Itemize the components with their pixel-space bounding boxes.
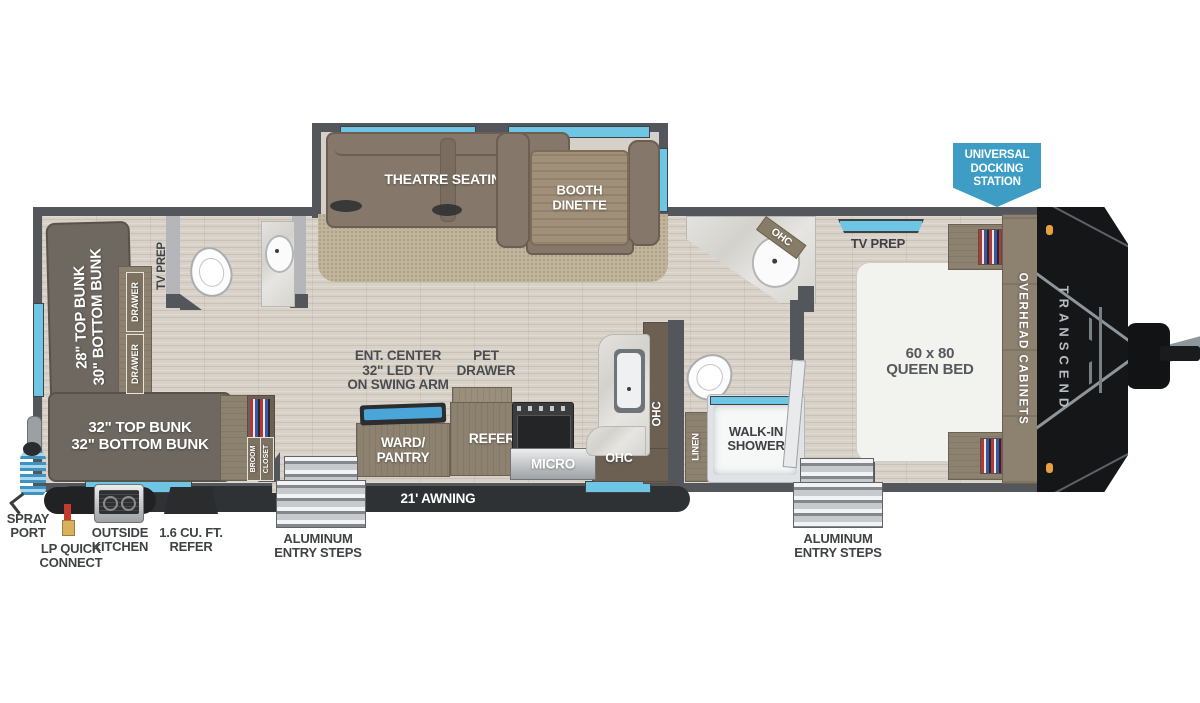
ohc-kitchen-side-wrap: OHC: [646, 388, 670, 440]
docking-station-badge: UNIVERSAL DOCKING STATION: [953, 143, 1041, 207]
ent-center-label: ENT. CENTER 32" LED TV ON SWING ARM: [342, 349, 454, 393]
entry-steps-left-top: [284, 456, 358, 482]
lp-connector: [64, 504, 71, 521]
closet-chip: CLOSET: [260, 437, 274, 481]
dinette-bench-left: [496, 132, 530, 248]
spray-port-label: SPRAY PORT: [2, 512, 54, 540]
badge-line3: STATION: [953, 176, 1041, 190]
wardrobe-cabinet: [220, 395, 248, 481]
outside-refer-unit: [164, 487, 218, 514]
microwave: MICRO: [510, 448, 596, 480]
overhead-cabinets-label: OVERHEAD CABINETS: [1016, 273, 1029, 426]
tv-prep-rear-label-wrap: TV PREP: [142, 228, 182, 304]
rear-bath-faucet: [275, 249, 279, 253]
front-cap: TRANSCEND: [1037, 207, 1128, 492]
range-cooktop: [512, 402, 574, 452]
hall-wall: [668, 320, 684, 483]
tv-prep-bed-label: TV PREP: [838, 237, 918, 251]
closet-label: CLOSET: [263, 445, 271, 473]
tv-prep-bed-mount: [838, 219, 924, 233]
kitchen-sink: [614, 349, 645, 413]
marker-light-bottom: [1046, 463, 1053, 473]
bunk32-label-bottom: 32" BOTTOM BUNK: [71, 437, 208, 454]
bunk-32: 32" TOP BUNK 32" BOTTOM BUNK: [48, 392, 232, 482]
bedroom-wall-post: [790, 300, 804, 360]
swing-arm-tv: [360, 403, 447, 426]
broom-chip: BROOM: [247, 437, 261, 481]
entry-steps-right: [793, 482, 883, 528]
broom-label: BROOM: [250, 446, 258, 473]
spray-port-cap: [23, 442, 41, 456]
pet-drawer-label: PET DRAWER: [448, 349, 524, 378]
refer-label: REFER: [469, 431, 515, 447]
linen-cabinet: LINEN: [685, 412, 708, 482]
linen-label: LINEN: [691, 433, 702, 461]
ward-pantry-cabinet: WARD/ PANTRY: [356, 423, 450, 477]
outside-kitchen-unit: [94, 484, 144, 523]
cap-emblem: [1099, 307, 1102, 393]
nightstand-top: [948, 224, 1006, 270]
tv-prep-rear-label: TV PREP: [156, 242, 168, 290]
micro-label: MICRO: [531, 456, 575, 471]
dinette-table: BOOTH DINETTE: [530, 150, 629, 246]
outside-kitchen-label: OUTSIDE KITCHEN: [88, 526, 152, 554]
drawer-label-1: DRAWER: [130, 282, 140, 322]
outside-refer-label: 1.6 CU. FT. REFER: [154, 526, 228, 554]
bunk-rear-label-bottom: 30" BOTTOM BUNK: [88, 247, 108, 385]
spray-port-hose: [20, 450, 46, 498]
nightstand-bottom-books: [980, 438, 1004, 474]
theatre-seating-label: THEATRE SEATING: [384, 172, 511, 188]
awning-label: 21' AWNING: [378, 491, 498, 506]
dinette-bench-right: [628, 140, 660, 246]
pet-drawer-unit: [452, 387, 512, 403]
bunk32-label-top: 32" TOP BUNK: [71, 420, 208, 437]
badge-line2: DOCKING: [953, 163, 1041, 177]
closet-books: [250, 399, 270, 437]
drawer-chip-2: DRAWER: [126, 334, 144, 394]
lp-connector-tip: [62, 520, 75, 536]
ward-label-line2: PANTRY: [377, 450, 430, 465]
marker-light-top: [1046, 225, 1053, 235]
nightstand-bottom: [948, 432, 1008, 480]
shower-label-line1: WALK-IN: [727, 424, 784, 438]
drawer-label-2: DRAWER: [130, 344, 140, 384]
entry-steps-right-top: [800, 458, 874, 484]
ward-label-line1: WARD/: [377, 435, 430, 450]
dinette-label-line1: BOOTH: [552, 183, 606, 198]
badge-line1: UNIVERSAL: [953, 149, 1041, 163]
ohc-kitchen-bottom-label: OHC: [596, 451, 642, 465]
ohc-kitchen-side-label: OHC: [652, 402, 665, 427]
shower-label-line2: SHOWER: [727, 439, 784, 453]
dinette-label-line2: DINETTE: [552, 198, 606, 213]
nightstand-top-books: [978, 229, 1002, 265]
window-kitchen-bottom: [585, 481, 651, 493]
bed-label-line1: 60 x 80: [886, 346, 973, 362]
overhead-cabinets: OVERHEAD CABINETS: [1002, 214, 1042, 484]
brand-text: TRANSCEND: [1057, 286, 1072, 413]
floorplan-canvas: 28" TOP BUNK 30" BOTTOM BUNK DRAWER DRAW…: [0, 0, 1200, 703]
hitch-bar: [1160, 346, 1200, 361]
window-rear-wall: [33, 303, 44, 397]
rear-bath-sink: [265, 235, 294, 273]
steps-left-label: ALUMINUM ENTRY STEPS: [266, 532, 370, 560]
entry-steps-left: [276, 480, 366, 528]
steps-right-label: ALUMINUM ENTRY STEPS: [786, 532, 890, 560]
bed-label-line2: QUEEN BED: [886, 362, 973, 378]
